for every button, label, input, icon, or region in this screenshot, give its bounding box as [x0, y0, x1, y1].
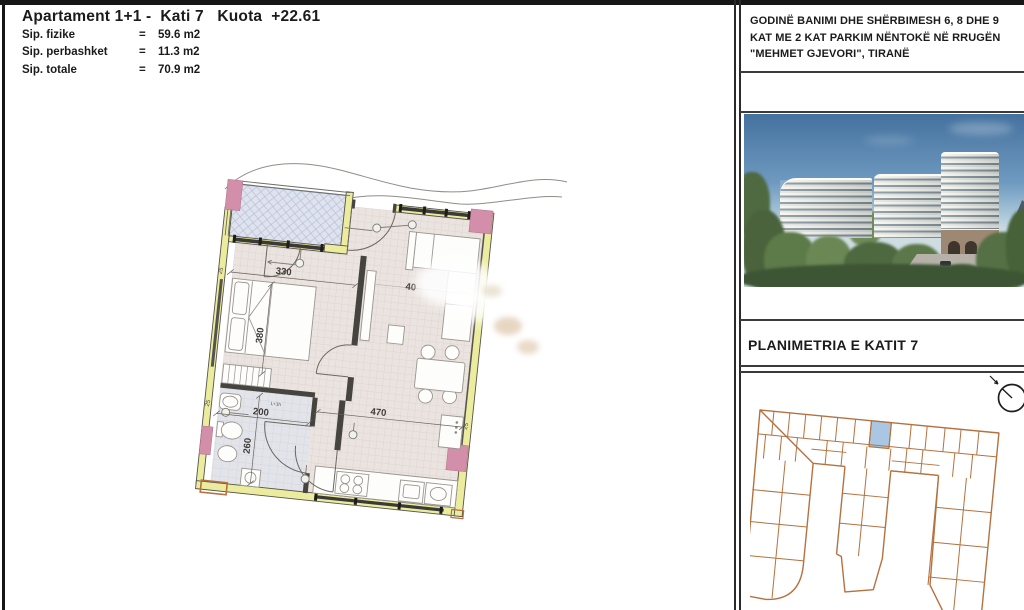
coffee-table — [387, 325, 405, 345]
area-label: Sip. totale — [22, 64, 77, 76]
dim-40: 40 — [405, 281, 417, 293]
panel-rule — [740, 111, 1024, 113]
panel-rule — [740, 319, 1024, 321]
cloud — [949, 122, 1013, 135]
dim-380: 380 — [254, 327, 267, 344]
project-title-line: GODINË BANIMI DHE SHËRBIMESH 6, 8 DHE 9 — [750, 13, 1022, 30]
tree-hedge — [744, 264, 1024, 287]
cabinet — [438, 415, 463, 449]
project-title: GODINË BANIMI DHE SHËRBIMESH 6, 8 DHE 9 … — [750, 13, 1022, 63]
stove — [335, 471, 369, 496]
floor-plan: 330 380 200 260 470 40 25 25 25 L+1h — [140, 120, 630, 595]
drawing-sheet: Apartament 1+1 - Kati 7 Kuota +22.61 Sip… — [0, 0, 1024, 610]
sheet-top-border — [0, 0, 1024, 5]
panel-rule — [740, 371, 1024, 373]
dim-200: 200 — [252, 406, 269, 419]
page-title: Apartament 1+1 - Kati 7 Kuota +22.61 — [22, 8, 320, 26]
project-title-line: "MEHMET GJEVORI", TIRANË — [750, 46, 1022, 63]
panel-rule — [740, 71, 1024, 73]
panel-divider-line — [739, 0, 741, 610]
building-render-photo — [744, 114, 1024, 287]
kitchen-sink — [398, 480, 424, 503]
equals-sign: = — [139, 64, 146, 76]
equals-sign: = — [139, 46, 146, 58]
panel-divider-line — [734, 0, 736, 610]
highlighted-unit — [869, 421, 891, 449]
sheet-left-border — [2, 0, 5, 610]
apartment-building-left — [780, 178, 872, 238]
area-value: 11.3 m2 — [158, 46, 200, 58]
key-plan-drawing — [750, 378, 1024, 610]
project-title-line: KAT ME 2 KAT PARKIM NËNTOKË NË RRUGËN — [750, 30, 1022, 47]
equals-sign: = — [139, 29, 146, 41]
area-value: 70.9 m2 — [158, 64, 200, 76]
section-title: PLANIMETRIA E KATIT 7 — [748, 337, 918, 353]
cloud — [864, 136, 914, 145]
dining-table — [414, 358, 465, 393]
dim-260: 260 — [241, 437, 254, 454]
area-value: 59.6 m2 — [158, 29, 200, 41]
area-label: Sip. fizike — [22, 29, 75, 41]
panel-rule — [740, 365, 1024, 367]
area-label: Sip. perbashket — [22, 46, 108, 58]
dim-330: 330 — [275, 266, 292, 279]
dim-470: 470 — [370, 406, 387, 419]
